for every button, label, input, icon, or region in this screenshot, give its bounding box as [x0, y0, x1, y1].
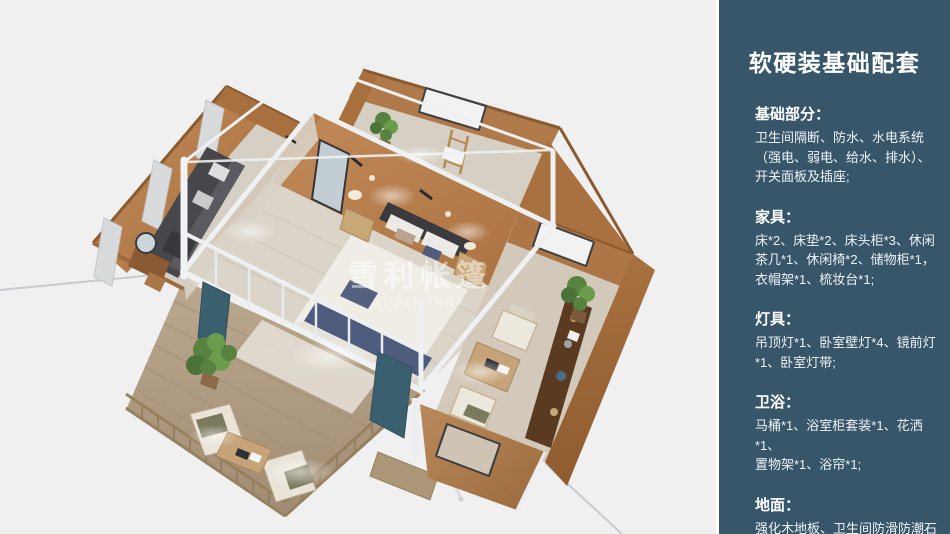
section-heading: 灯具： — [755, 308, 940, 329]
info-panel: 软硬装基础配套 基础部分： 卫生间隔断、防水、水电系统 （强电、弱电、给水、排水… — [719, 0, 950, 534]
section-body: 床*2、床垫*2、床头柜*3、休闲 茶几*1、休闲椅*2、储物柜*1， 衣帽架*… — [755, 231, 940, 290]
section-body: 卫生间隔断、防水、水电系统 （强电、弱电、给水、排水）、 开关面板及插座; — [755, 128, 940, 187]
slide: 雪利帐篷 XUELI TENT 软硬装基础配套 基础部分： 卫生间隔断、防水、水… — [0, 0, 950, 534]
watermark-cn: 雪利帐篷 — [348, 260, 492, 293]
section-heading: 家具： — [755, 206, 940, 227]
section-body: 吊顶灯*1、卧室壁灯*4、镜前灯 *1、卧室灯带; — [755, 333, 940, 372]
floorplan-render: 雪利帐篷 XUELI TENT — [0, 0, 716, 534]
section-heading: 卫浴： — [755, 391, 940, 412]
round-mirror — [136, 233, 156, 253]
section-flooring: 地面： 强化木地板、卫生间防滑防潮石 塑板; — [755, 494, 940, 534]
section-basics: 基础部分： 卫生间隔断、防水、水电系统 （强电、弱电、给水、排水）、 开关面板及… — [755, 103, 940, 187]
floorplan-svg: 雪利帐篷 XUELI TENT — [0, 0, 716, 534]
floor-mirror — [312, 140, 349, 213]
lamp-right — [464, 242, 476, 250]
lamp-left — [348, 190, 362, 200]
section-heading: 地面： — [755, 494, 940, 515]
section-lighting: 灯具： 吊顶灯*1、卧室壁灯*4、镜前灯 *1、卧室灯带; — [755, 308, 940, 372]
section-body: 强化木地板、卫生间防滑防潮石 塑板; — [755, 519, 940, 534]
panel-title: 软硬装基础配套 — [719, 0, 950, 78]
section-body: 马桶*1、浴室柜套装*1、花洒*1、 置物架*1、浴帘*1; — [755, 416, 940, 475]
section-bathroom: 卫浴： 马桶*1、浴室柜套装*1、花洒*1、 置物架*1、浴帘*1; — [755, 391, 940, 475]
watermark-en: XUELI TENT — [373, 297, 466, 309]
section-furniture: 家具： 床*2、床垫*2、床头柜*3、休闲 茶几*1、休闲椅*2、储物柜*1， … — [755, 206, 940, 290]
panel-sections: 基础部分： 卫生间隔断、防水、水电系统 （强电、弱电、给水、排水）、 开关面板及… — [719, 78, 950, 534]
section-heading: 基础部分： — [755, 103, 940, 124]
